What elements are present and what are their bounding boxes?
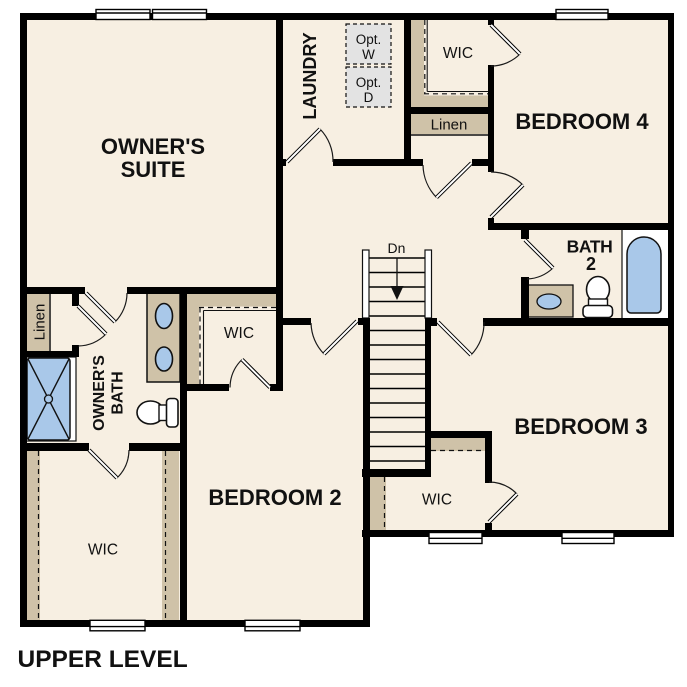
svg-text:2: 2 xyxy=(586,254,596,274)
svg-text:OWNER'S: OWNER'S xyxy=(101,134,205,159)
svg-text:Dn: Dn xyxy=(388,240,406,256)
svg-text:WIC: WIC xyxy=(224,325,254,342)
svg-text:BATH: BATH xyxy=(110,371,127,414)
svg-text:BEDROOM 4: BEDROOM 4 xyxy=(515,109,649,134)
svg-text:Opt.: Opt. xyxy=(356,32,382,47)
svg-text:SUITE: SUITE xyxy=(121,157,186,182)
svg-text:UPPER LEVEL: UPPER LEVEL xyxy=(18,646,188,673)
svg-text:WIC: WIC xyxy=(443,45,473,62)
svg-text:D: D xyxy=(364,90,374,105)
svg-text:WIC: WIC xyxy=(422,492,452,509)
svg-text:BEDROOM 3: BEDROOM 3 xyxy=(514,414,647,439)
svg-text:BEDROOM 2: BEDROOM 2 xyxy=(208,485,341,510)
svg-text:OWNER'S: OWNER'S xyxy=(91,355,108,431)
svg-text:W: W xyxy=(362,47,375,62)
svg-text:Linen: Linen xyxy=(32,304,49,341)
svg-text:WIC: WIC xyxy=(88,542,118,559)
svg-text:Linen: Linen xyxy=(431,117,468,134)
svg-text:Opt.: Opt. xyxy=(356,75,382,90)
svg-text:LAUNDRY: LAUNDRY xyxy=(300,32,320,119)
